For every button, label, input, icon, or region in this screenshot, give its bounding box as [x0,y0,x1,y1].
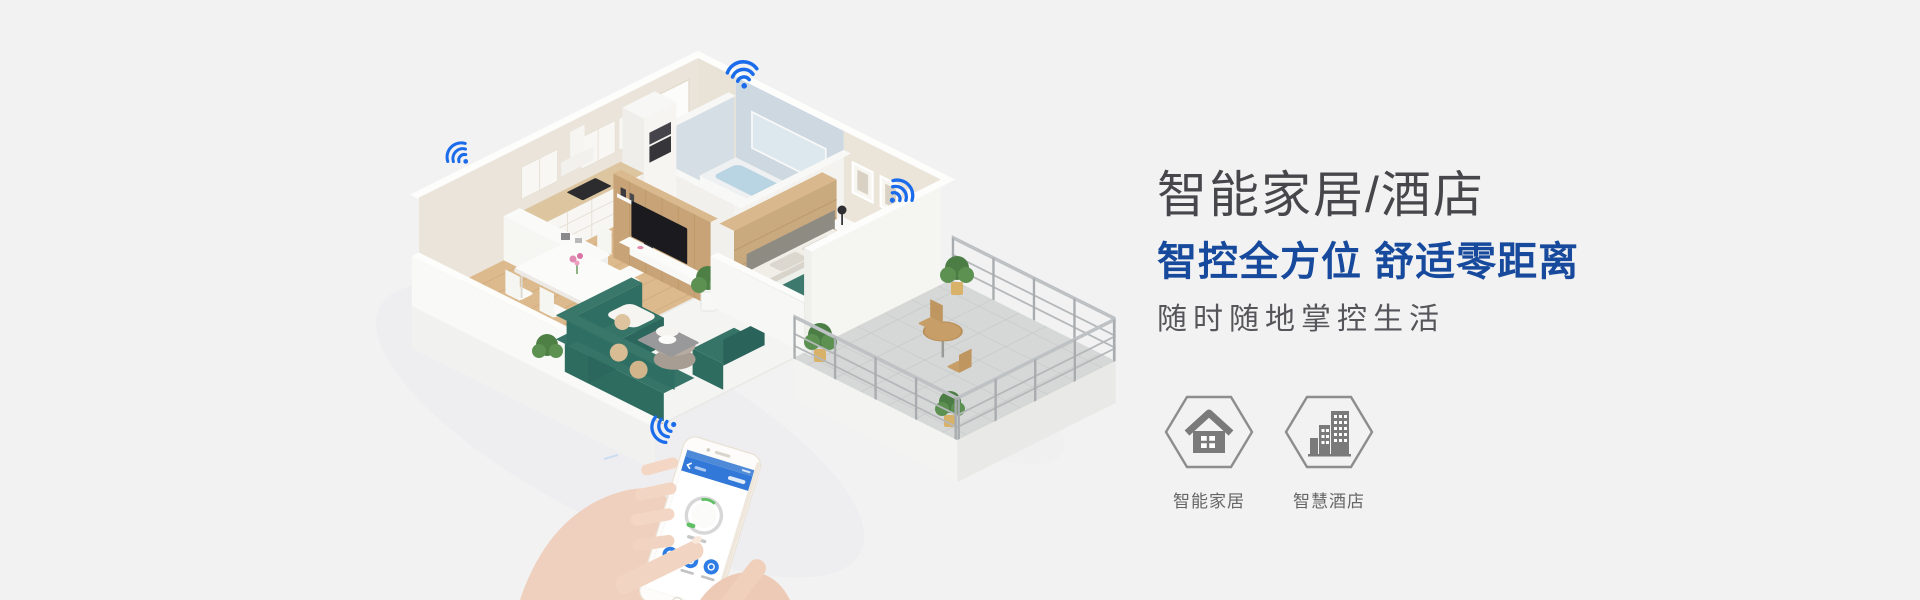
house-icon [1163,391,1255,475]
feature-label: 智能家居 [1173,487,1245,512]
feature-smart-hotel[interactable]: 智慧酒店 [1280,391,1378,512]
feature-label: 智慧酒店 [1293,487,1365,512]
hotel-buildings-icon [1283,391,1375,475]
subheadline: 智控全方位 舒适零距离 [1157,239,1797,285]
headline: 智能家居/酒店 [1157,168,1797,223]
tagline: 随时随地掌控生活 [1157,302,1797,338]
feature-list: 智能家居 智慧酒店 [1160,391,1378,512]
hero-banner: 智能家居/酒店 智控全方位 舒适零距离 随时随地掌控生活 智能家居 [0,0,1920,600]
feature-smart-home[interactable]: 智能家居 [1160,391,1258,512]
kitchen-pot [561,233,570,240]
table-lamp [838,206,847,215]
hero-copy: 智能家居/酒店 智控全方位 舒适零距离 随时随地掌控生活 [1157,168,1797,338]
